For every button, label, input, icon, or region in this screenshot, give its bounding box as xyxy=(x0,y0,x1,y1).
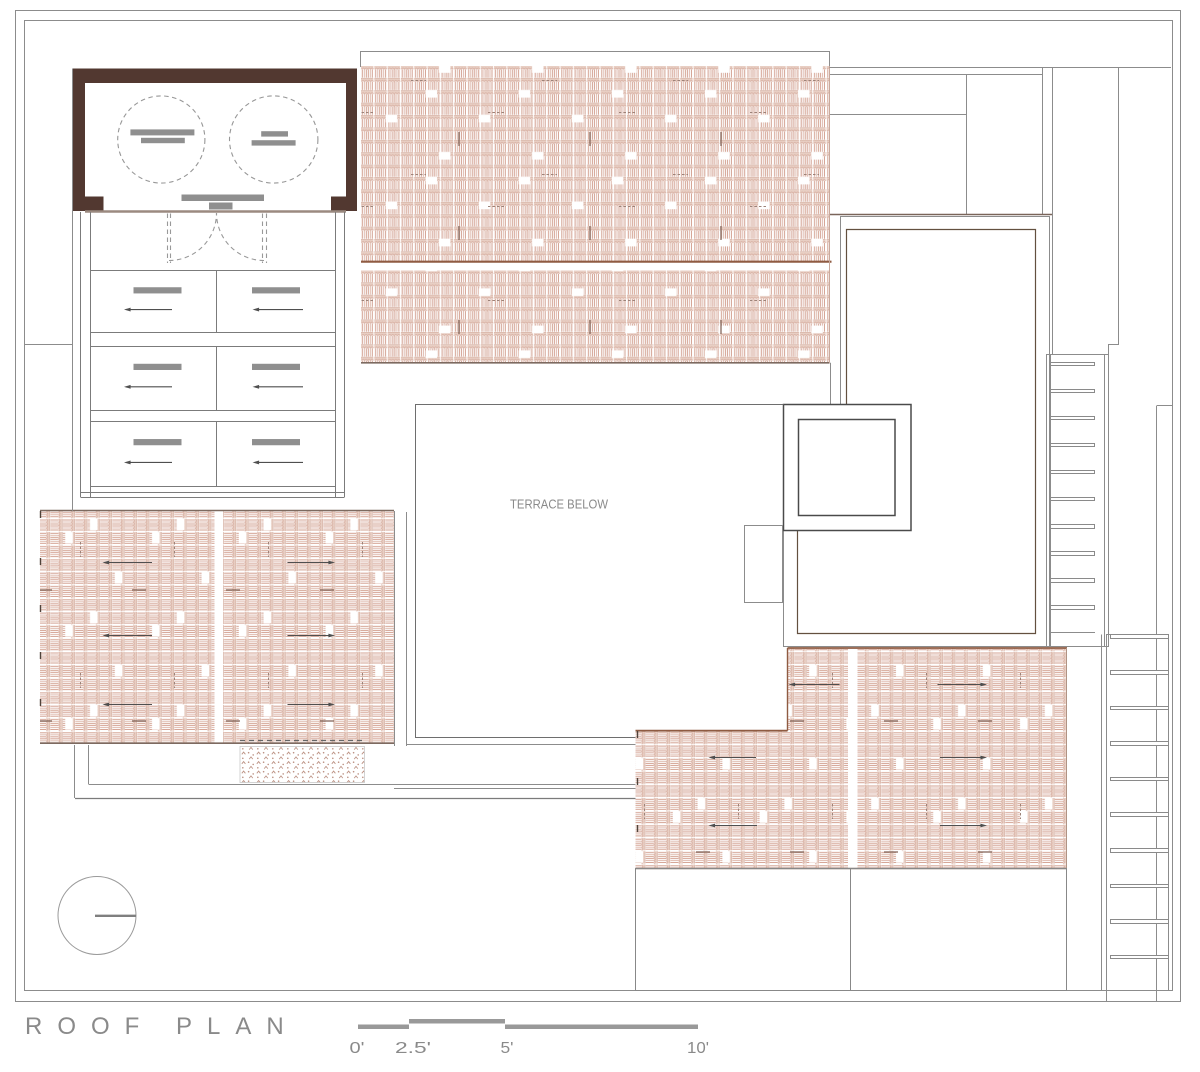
svg-text:ROOF PLAN: ROOF PLAN xyxy=(25,1013,299,1040)
svg-text:5': 5' xyxy=(501,1040,514,1057)
svg-text:TERRACE BELOW: TERRACE BELOW xyxy=(510,498,608,512)
svg-text:2.5': 2.5' xyxy=(395,1040,431,1057)
svg-text:10': 10' xyxy=(687,1040,709,1057)
svg-text:0': 0' xyxy=(350,1040,365,1057)
